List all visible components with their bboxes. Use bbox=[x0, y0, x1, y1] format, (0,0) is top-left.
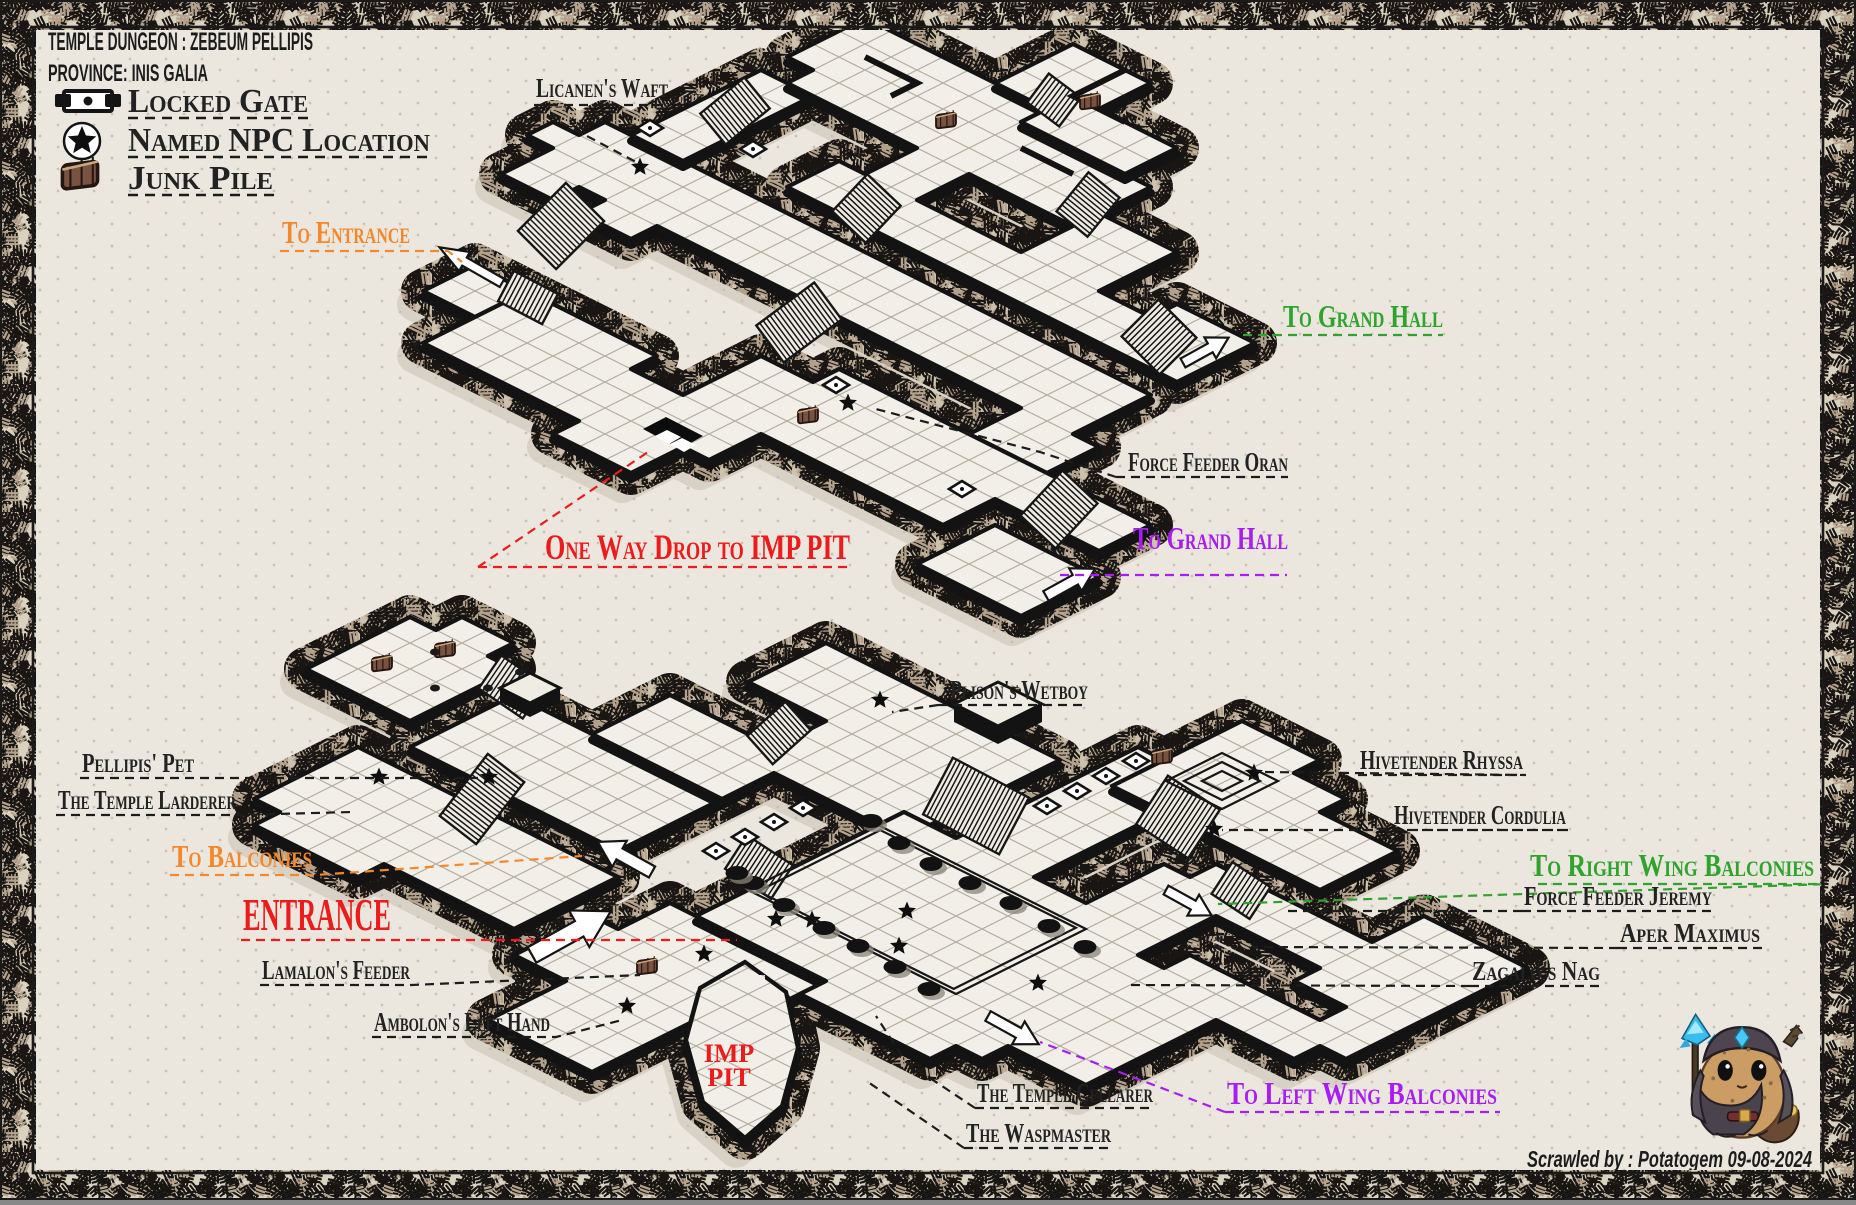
svg-text:To Grand Hall: To Grand Hall bbox=[1133, 520, 1288, 556]
svg-text:To Left Wing Balconies: To Left Wing Balconies bbox=[1227, 1075, 1497, 1111]
svg-text:Aper Maximus: Aper Maximus bbox=[1620, 918, 1760, 948]
svg-text:Pellipis' Pet: Pellipis' Pet bbox=[82, 748, 194, 778]
svg-text:TEMPLE DUNGEON : ZEBEUM PELLIP: TEMPLE DUNGEON : ZEBEUM PELLIPIS bbox=[48, 28, 313, 56]
svg-text:PIT: PIT bbox=[707, 1063, 750, 1092]
svg-text:One Way Drop to IMP PIT: One Way Drop to IMP PIT bbox=[545, 527, 850, 567]
svg-text:To Right Wing Balconies: To Right Wing Balconies bbox=[1530, 847, 1814, 883]
svg-text:Junk Pile: Junk Pile bbox=[128, 160, 273, 197]
svg-text:Scrawled by : Potatogem 09-08-: Scrawled by : Potatogem 09-08-2024 bbox=[1527, 1146, 1812, 1172]
svg-text:Force Feeder Jeremy: Force Feeder Jeremy bbox=[1524, 881, 1712, 911]
svg-text:Plison's Wetboy: Plison's Wetboy bbox=[950, 675, 1088, 705]
svg-text:Lamalon's Feeder: Lamalon's Feeder bbox=[262, 955, 410, 985]
svg-text:The Waspmaster: The Waspmaster bbox=[966, 1118, 1111, 1148]
svg-text:Force Feeder Oran: Force Feeder Oran bbox=[1128, 447, 1288, 477]
svg-text:Ambolon's Left Hand: Ambolon's Left Hand bbox=[374, 1007, 550, 1037]
svg-text:ENTRANCE: ENTRANCE bbox=[243, 889, 391, 940]
svg-text:Zagalo's Nag: Zagalo's Nag bbox=[1472, 956, 1600, 986]
svg-text:The Temple Larderer: The Temple Larderer bbox=[58, 785, 236, 815]
svg-text:To Entrance: To Entrance bbox=[282, 214, 410, 250]
svg-text:Locked Gate: Locked Gate bbox=[128, 83, 308, 120]
svg-text:Hivetender Cordulia: Hivetender Cordulia bbox=[1394, 800, 1566, 830]
svg-text:Hivetender Rhyssa: Hivetender Rhyssa bbox=[1360, 745, 1523, 775]
svg-text:To Balconies: To Balconies bbox=[172, 838, 312, 874]
svg-text:The Temple Cellarer: The Temple Cellarer bbox=[977, 1078, 1153, 1108]
svg-text:Licanen's Waft: Licanen's Waft bbox=[536, 73, 668, 103]
svg-text:To Grand Hall: To Grand Hall bbox=[1283, 298, 1443, 334]
svg-text:Named NPC Location: Named NPC Location bbox=[128, 122, 431, 159]
